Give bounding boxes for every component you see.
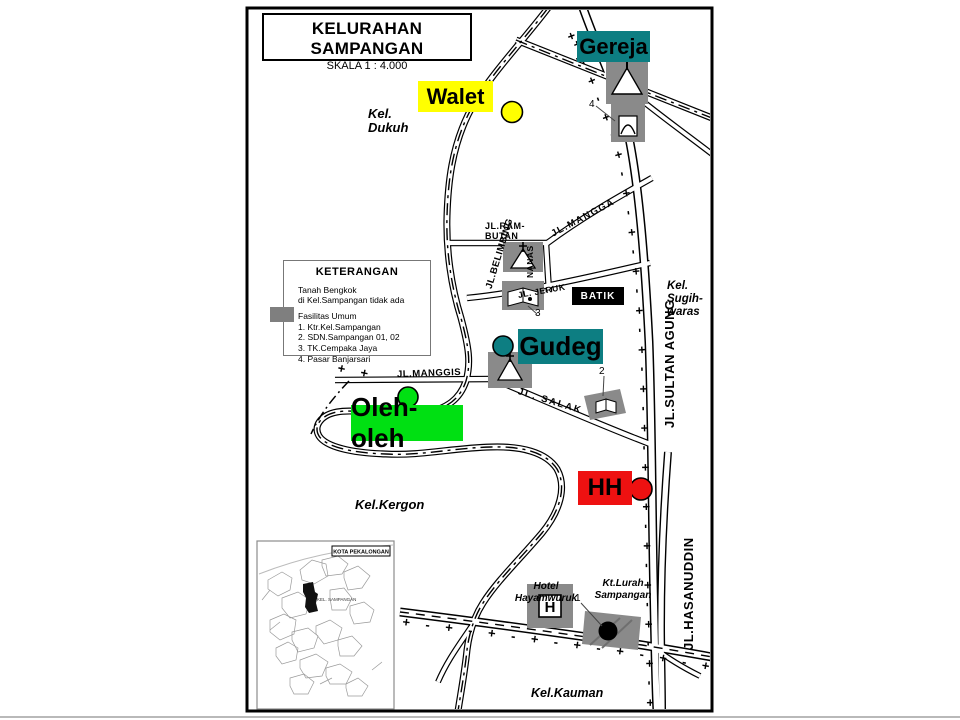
kel-sugihwaras-line1: Kel. (667, 280, 703, 293)
slide-bottom-edge (0, 716, 960, 718)
road-label-sultan-agung: JL.SULTAN AGUNG (662, 299, 677, 428)
legend-facilities-heading: Fasilitas Umum (298, 311, 430, 322)
legend-box: KETERANGAN Tanah Bengkok di Kel.Sampanga… (283, 260, 431, 356)
road-label-manggis: JL.MANGGIS (397, 367, 461, 380)
legend-heading: KETERANGAN (284, 266, 430, 280)
map-title: KELURAHAN SAMPANGAN (264, 19, 470, 59)
road-label-nanas: NANAS (525, 245, 535, 278)
legend-item: 3. TK.Cempaka Jaya (298, 343, 430, 354)
kel-kergon-label: Kel.Kergon (355, 497, 424, 512)
church-building-top (606, 56, 648, 104)
inset-sampangan-label: KEL. SAMPANGAN (317, 597, 356, 602)
title-box: KELURAHAN SAMPANGAN SKALA 1 : 4.000 (262, 13, 472, 61)
legend-item: 1. Ktr.Kel.Sampangan (298, 322, 430, 333)
batik-label: BATIK (572, 287, 624, 305)
kel-dukuh-line2: Dukuh (368, 121, 408, 135)
kel-kauman-label: Kel.Kauman (531, 686, 603, 700)
legend-item: 2. SDN.Sampangan 01, 02 (298, 332, 430, 343)
ktlurah-sampangan-label: Kt.Lurah Sampangan (582, 578, 664, 601)
map-scale: SKALA 1 : 4.000 (264, 60, 470, 72)
gudeg-label: Gudeg (518, 329, 603, 364)
oleh-oleh-label: Oleh-oleh (351, 405, 463, 441)
ktlurah-label-line2: Sampangan (582, 590, 664, 602)
hh-dot (630, 478, 652, 500)
map-slide: + - + - + - + - + - + - + - + - + - + - … (0, 0, 960, 720)
legend-note: Tanah Bengkok di Kel.Sampangan tidak ada (298, 285, 430, 306)
hotel-label-line1: Hotel (505, 581, 587, 593)
building-number-pasar: 4 (589, 99, 595, 110)
kel-dukuh-line1: Kel. (368, 107, 408, 121)
gereja-label: Gereja (577, 31, 650, 62)
office-dot-icon (599, 622, 618, 641)
building-number-ktr: 1 (575, 593, 581, 604)
inset-title: KOTA PEKALONGAN (333, 550, 389, 556)
kel-dukuh-label: Kel. Dukuh (368, 107, 408, 136)
mosque-nanas-building (503, 242, 543, 272)
building-number-tk: 3 (535, 308, 541, 319)
legend-item: 4. Pasar Banjarsari (298, 354, 430, 365)
inset-map: KEL. SAMPANGAN KOTA PEKALONGAN (257, 541, 394, 709)
legend-note-line1: Tanah Bengkok (298, 285, 430, 296)
ktlurah-label-line1: Kt.Lurah (582, 578, 664, 590)
walet-dot (502, 102, 523, 123)
book-icon (596, 399, 606, 413)
road-label-rambutan: JL.RAM- BUTAN (485, 222, 525, 242)
walet-label: Walet (418, 81, 493, 112)
legend-note-line2: di Kel.Sampangan tidak ada (298, 295, 430, 306)
hh-label: HH (578, 471, 632, 505)
legend-items: 1. Ktr.Kel.Sampangan 2. SDN.Sampangan 01… (298, 322, 430, 365)
legend-swatch (270, 307, 294, 322)
gudeg-dot (493, 336, 513, 356)
inset-frame (257, 541, 394, 709)
road-label-hasanuddin: JL.HASANUDDIN (681, 537, 696, 650)
building-number-sdn: 2 (599, 366, 605, 377)
road-label-rambutan-line2: BUTAN (485, 232, 525, 242)
